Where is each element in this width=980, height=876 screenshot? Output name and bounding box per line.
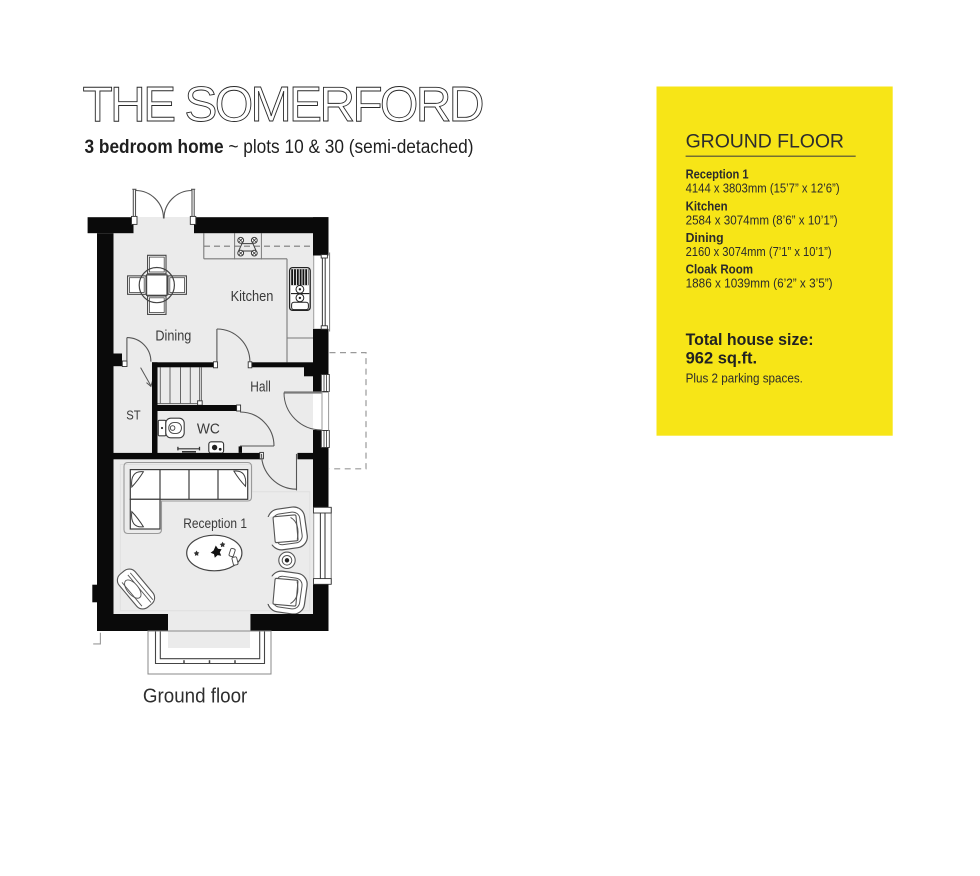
svg-text:Plus 2 parking spaces.: Plus 2 parking spaces. <box>686 371 803 386</box>
svg-text:Reception 1: Reception 1 <box>686 167 749 182</box>
svg-text:4144 x 3803mm (15’7” x 12’6”): 4144 x 3803mm (15’7” x 12’6”) <box>686 181 840 196</box>
svg-text:GROUND FLOOR: GROUND FLOOR <box>686 130 844 152</box>
svg-text:Ground floor: Ground floor <box>143 685 248 708</box>
svg-text:Total house size:: Total house size: <box>686 331 814 349</box>
svg-text:WC: WC <box>197 421 220 437</box>
svg-text:Hall: Hall <box>250 379 270 395</box>
svg-text:1886 x 1039mm (6’2” x 3’5”): 1886 x 1039mm (6’2” x 3’5”) <box>686 276 833 291</box>
svg-text:Dining: Dining <box>155 329 191 345</box>
svg-text:2160 x 3074mm (7’1” x 10’1”): 2160 x 3074mm (7’1” x 10’1”) <box>686 244 832 259</box>
svg-text:Reception 1: Reception 1 <box>183 516 247 531</box>
svg-text:3 bedroom home ~ plots 10 & 30: 3 bedroom home ~ plots 10 & 30 (semi-det… <box>85 137 474 158</box>
svg-text:THE SOMERFORD: THE SOMERFORD <box>83 77 485 132</box>
svg-text:Kitchen: Kitchen <box>686 198 728 213</box>
svg-text:Dining: Dining <box>686 230 724 245</box>
svg-text:Cloak Room: Cloak Room <box>686 262 754 277</box>
svg-text:962 sq.ft.: 962 sq.ft. <box>686 349 758 367</box>
svg-text:ST: ST <box>126 407 140 422</box>
svg-text:Kitchen: Kitchen <box>231 289 274 305</box>
svg-text:2584 x 3074mm (8’6” x 10’1”): 2584 x 3074mm (8’6” x 10’1”) <box>686 212 838 227</box>
